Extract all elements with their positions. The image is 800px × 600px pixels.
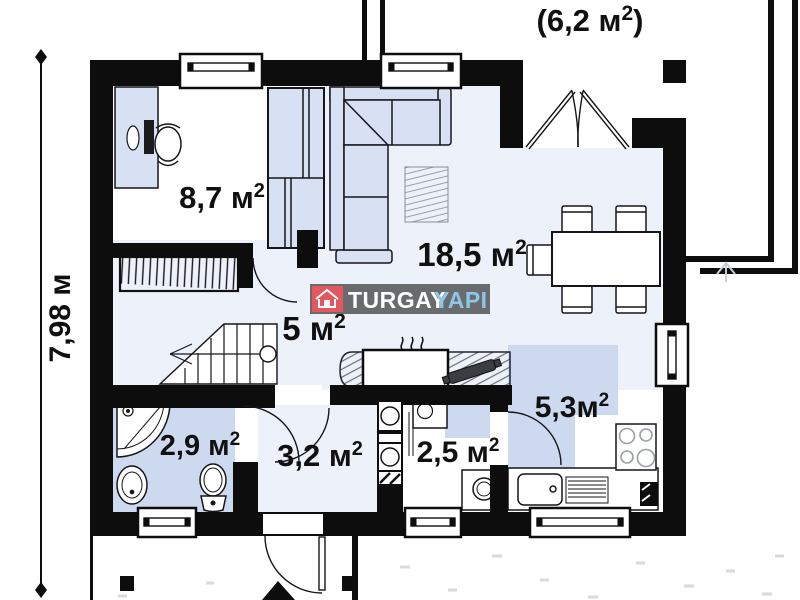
sink-icon bbox=[117, 466, 147, 504]
dining-table-icon bbox=[552, 232, 660, 286]
logo: TURGAY YAPI bbox=[310, 284, 490, 314]
wall-stub bbox=[297, 230, 318, 268]
dimension-label: 7,98 м bbox=[44, 274, 77, 363]
newel-post bbox=[260, 346, 276, 362]
entrance-door bbox=[263, 514, 325, 593]
dimension-arrow-icon bbox=[35, 49, 47, 65]
window bbox=[656, 324, 688, 386]
upper-floor-area-note: (6,2 м2) bbox=[537, 2, 644, 38]
wall-left bbox=[90, 60, 113, 536]
dimension-arrow-icon bbox=[35, 582, 47, 598]
window bbox=[180, 54, 262, 88]
chair-icon bbox=[616, 286, 646, 313]
flue-icon bbox=[640, 482, 658, 506]
monitor-icon bbox=[144, 120, 154, 154]
wall-step bbox=[500, 60, 523, 148]
office-chair-icon bbox=[155, 124, 181, 166]
ground-texture bbox=[118, 556, 784, 597]
chair-icon bbox=[527, 245, 553, 275]
room-label-utility: 2,5 м2 bbox=[417, 435, 500, 469]
room-label-living: 18,5 м2 bbox=[417, 236, 527, 273]
terrace-post bbox=[663, 60, 686, 83]
logo-brand-suffix: YAPI bbox=[434, 287, 488, 313]
rug-icon bbox=[405, 167, 448, 222]
wall-bedroom bbox=[112, 243, 237, 258]
speaker-icon bbox=[127, 126, 139, 150]
chair-icon bbox=[616, 206, 646, 233]
closet-icon bbox=[120, 257, 238, 291]
room-label-entry: 3,2 м2 bbox=[277, 438, 363, 473]
logo-brand: TURGAY bbox=[348, 287, 446, 313]
porch-edge-left bbox=[90, 536, 93, 600]
chair-icon bbox=[562, 206, 592, 233]
terrace-outline bbox=[686, 0, 798, 274]
wall-kitchen-jamb-bottom bbox=[490, 465, 508, 512]
window bbox=[138, 508, 196, 537]
wardrobe-icon bbox=[268, 88, 324, 248]
window bbox=[405, 508, 461, 537]
wall-hall-bath bbox=[90, 385, 275, 408]
cooktop-icon bbox=[363, 350, 448, 389]
window bbox=[381, 54, 461, 88]
wall-kitchen-jamb-top bbox=[490, 385, 508, 412]
porch-post bbox=[342, 576, 357, 591]
chair-icon bbox=[562, 286, 592, 313]
utility-floor-patch bbox=[445, 402, 490, 438]
wall-counter bbox=[330, 385, 512, 405]
porch-post bbox=[120, 576, 134, 591]
room-label-bedroom: 8,7 м2 bbox=[179, 180, 265, 215]
dimension-line: 7,98 м bbox=[35, 49, 77, 598]
toilet-icon bbox=[200, 464, 226, 512]
floor-plan: 8,7 м2 18,5 м2 5 м2 2,9 м2 3,2 м2 2,5 м2… bbox=[0, 0, 800, 600]
chimney bbox=[362, 0, 385, 62]
window bbox=[530, 508, 630, 537]
wall-bath-right bbox=[233, 462, 258, 512]
wall-bedroom-jamb bbox=[237, 243, 253, 288]
room-label-kitchen: 5,3м2 bbox=[535, 390, 609, 424]
french-door bbox=[526, 90, 629, 149]
room-label-bathroom: 2,9 м2 bbox=[160, 429, 240, 462]
